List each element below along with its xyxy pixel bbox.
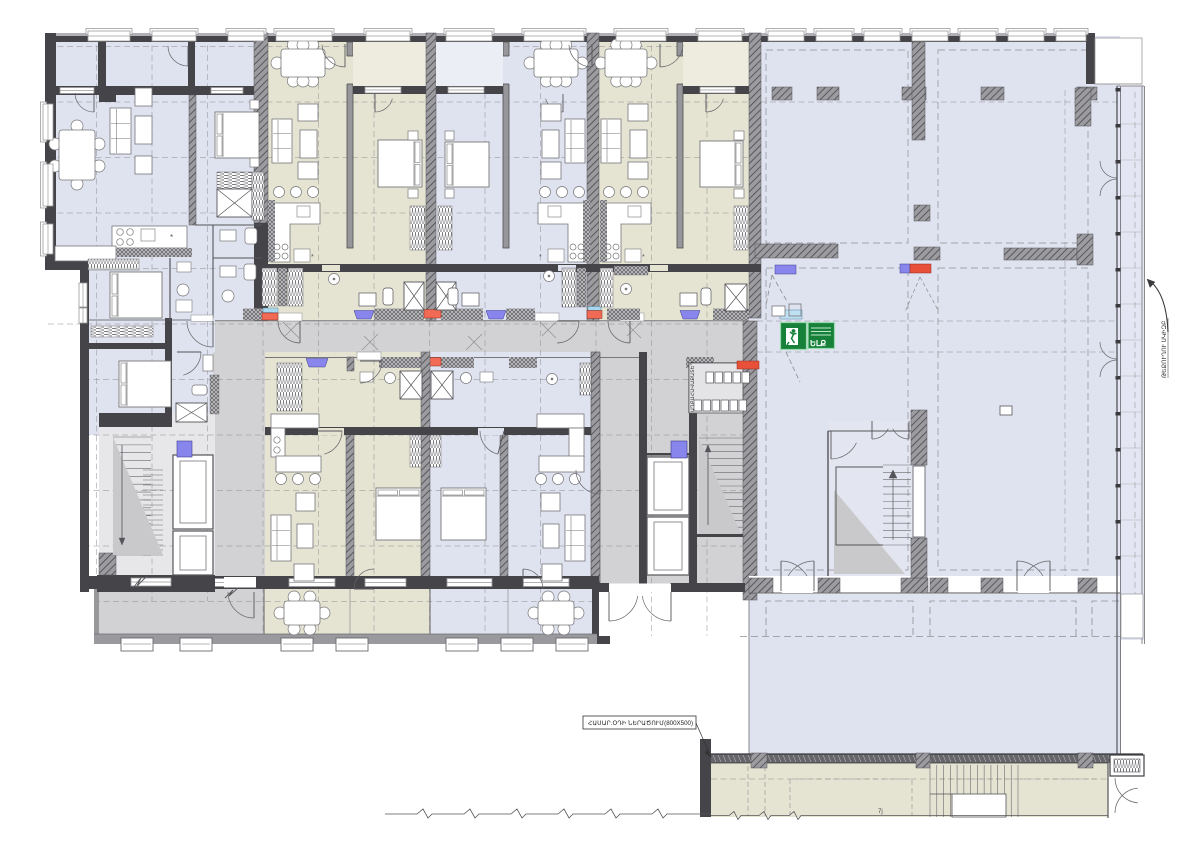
svg-text:*: * bbox=[642, 254, 645, 261]
svg-text:*: * bbox=[311, 254, 314, 261]
svg-text:ԹԵՔՈՒՂՈՒ ՍԿԻԶԲ: ԹԵՔՈՒՂՈՒ ՍԿԻԶԲ bbox=[1161, 321, 1168, 378]
svg-text:ԵԼՔ: ԵԼՔ bbox=[810, 339, 826, 348]
svg-text:ՀԱՍԱՐ.ՕԴԻ ՆԵՐԱԾՈՒՄ(800X500): ՀԱՍԱՐ.ՕԴԻ ՆԵՐԱԾՈՒՄ(800X500) bbox=[588, 720, 693, 727]
svg-text:*: * bbox=[539, 254, 542, 261]
svg-text:7j: 7j bbox=[878, 809, 883, 815]
svg-text:*: * bbox=[170, 233, 173, 242]
svg-text:ԱՂԲԱՀԱՎԱՔԱՏԵՂ: ԱՂԲԱՀԱՎԱՔԱՏԵՂ bbox=[690, 361, 696, 412]
